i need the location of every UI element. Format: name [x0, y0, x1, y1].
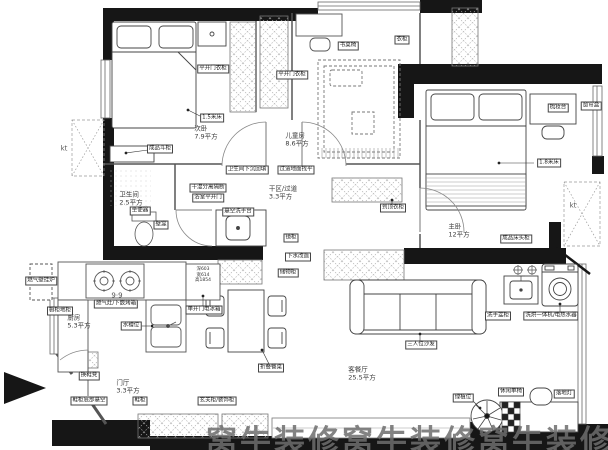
annotation-backfill-left: 卫生间下沉回填 — [226, 166, 269, 175]
watermark: 窝牛装修窝牛装修窝牛装修 — [206, 416, 608, 450]
room-label-zhuwo: 主卧12平方 — [448, 224, 469, 239]
annotation-entry-cab: 玄关柜/装饰柜 — [198, 397, 237, 406]
annotation-wardrobe-left: 平开门衣柜 — [197, 65, 229, 74]
annotation-washer-tag: 洗烘一体机/电热水器 — [523, 312, 578, 321]
annotation-mirror: 镜柜 — [283, 234, 298, 243]
annotation-master-desk: 梳妆台 — [548, 104, 569, 113]
annotation-kt-right: kt — [569, 203, 578, 210]
room-label-chufang: 厨房5.3平方 — [67, 315, 90, 330]
room-label-menting: 门厅3.3平方 — [116, 380, 139, 395]
annotation-nightstand: 成品床头柜 — [500, 235, 532, 244]
annotation-bed-15: 1.5米床 — [200, 114, 224, 123]
annotation-vanity-tag: 悬空洗手台 — [222, 208, 254, 217]
label-layer: 次卧7.9平方儿童房8.6平方卫生间2.5平方干区/过道3.3平方主卧12平方厨… — [0, 0, 608, 450]
annotation-shoe-cab: 鞋柜底部悬空 — [70, 397, 107, 406]
annotation-bed-18: 1.8米床 — [537, 159, 561, 168]
annotation-backfill-right: 过道地面找平 — [277, 166, 314, 175]
annotation-drain-tag: 下水改造 — [285, 253, 311, 262]
annotation-kids-desk: 书桌椅 — [338, 42, 359, 51]
annotation-curtain-box: 窗帘盒 — [581, 102, 602, 111]
annotation-stove-dim: 9·9 — [110, 293, 123, 300]
room-label-ertongfang: 儿童房8.6平方 — [285, 133, 308, 148]
annotation-sink-tag: 水槽位 — [121, 322, 142, 331]
annotation-fridge-tag: 单开门电冰箱 — [185, 306, 222, 315]
room-label-weishengjian: 卫生间2.5平方 — [119, 192, 142, 207]
annotation-toilet-tag: 坐便器 — [130, 207, 151, 216]
annotation-kids-closet: 到顶衣柜 — [380, 204, 406, 213]
annotation-sofa-tag: 三人位沙发 — [405, 341, 437, 350]
annotation-dresser: 成品斗柜 — [147, 145, 173, 154]
room-label-keting: 客餐厅25.5平方 — [348, 367, 375, 382]
floorplan: 次卧7.9平方儿童房8.6平方卫生间2.5平方干区/过道3.3平方主卧12平方厨… — [0, 0, 608, 450]
fridge-dimensions: 深603 宽614 高1854 — [195, 267, 211, 284]
annotation-kids-wardrobe: 衣柜 — [394, 36, 409, 45]
annotation-bath-door: 浴室平开门 — [192, 194, 224, 203]
annotation-shower-partition: 干湿分离隔断 — [189, 184, 226, 193]
annotation-bench-tag: 换鞋凳 — [79, 372, 100, 381]
annotation-niche: 壁龛 — [153, 221, 168, 230]
room-label-ciwo: 次卧7.9平方 — [194, 126, 217, 141]
annotation-basin-tag: 洗手盆柜 — [485, 312, 511, 321]
annotation-chair-tag: 休闲单椅 — [498, 388, 524, 397]
annotation-shoe-cab2: 鞋柜 — [132, 397, 147, 406]
annotation-hall-cabinet: 储物柜 — [278, 269, 299, 278]
annotation-base-cabinet: 橱柜地柜 — [47, 307, 73, 316]
annotation-boiler-tag: 燃气壁挂炉 — [25, 277, 57, 286]
annotation-wardrobe-right: 平开门衣柜 — [276, 71, 308, 80]
annotation-stove-tag: 燃气灶/下嵌烤箱 — [94, 300, 138, 309]
annotation-kt-left: kt — [60, 146, 69, 153]
room-label-ganqu: 干区/过道3.3平方 — [269, 186, 297, 201]
annotation-floor-lamp: 落地灯 — [554, 390, 575, 399]
annotation-plant-tag: 绿植位 — [453, 394, 474, 403]
annotation-dining-tag: 折叠餐桌 — [258, 364, 284, 373]
